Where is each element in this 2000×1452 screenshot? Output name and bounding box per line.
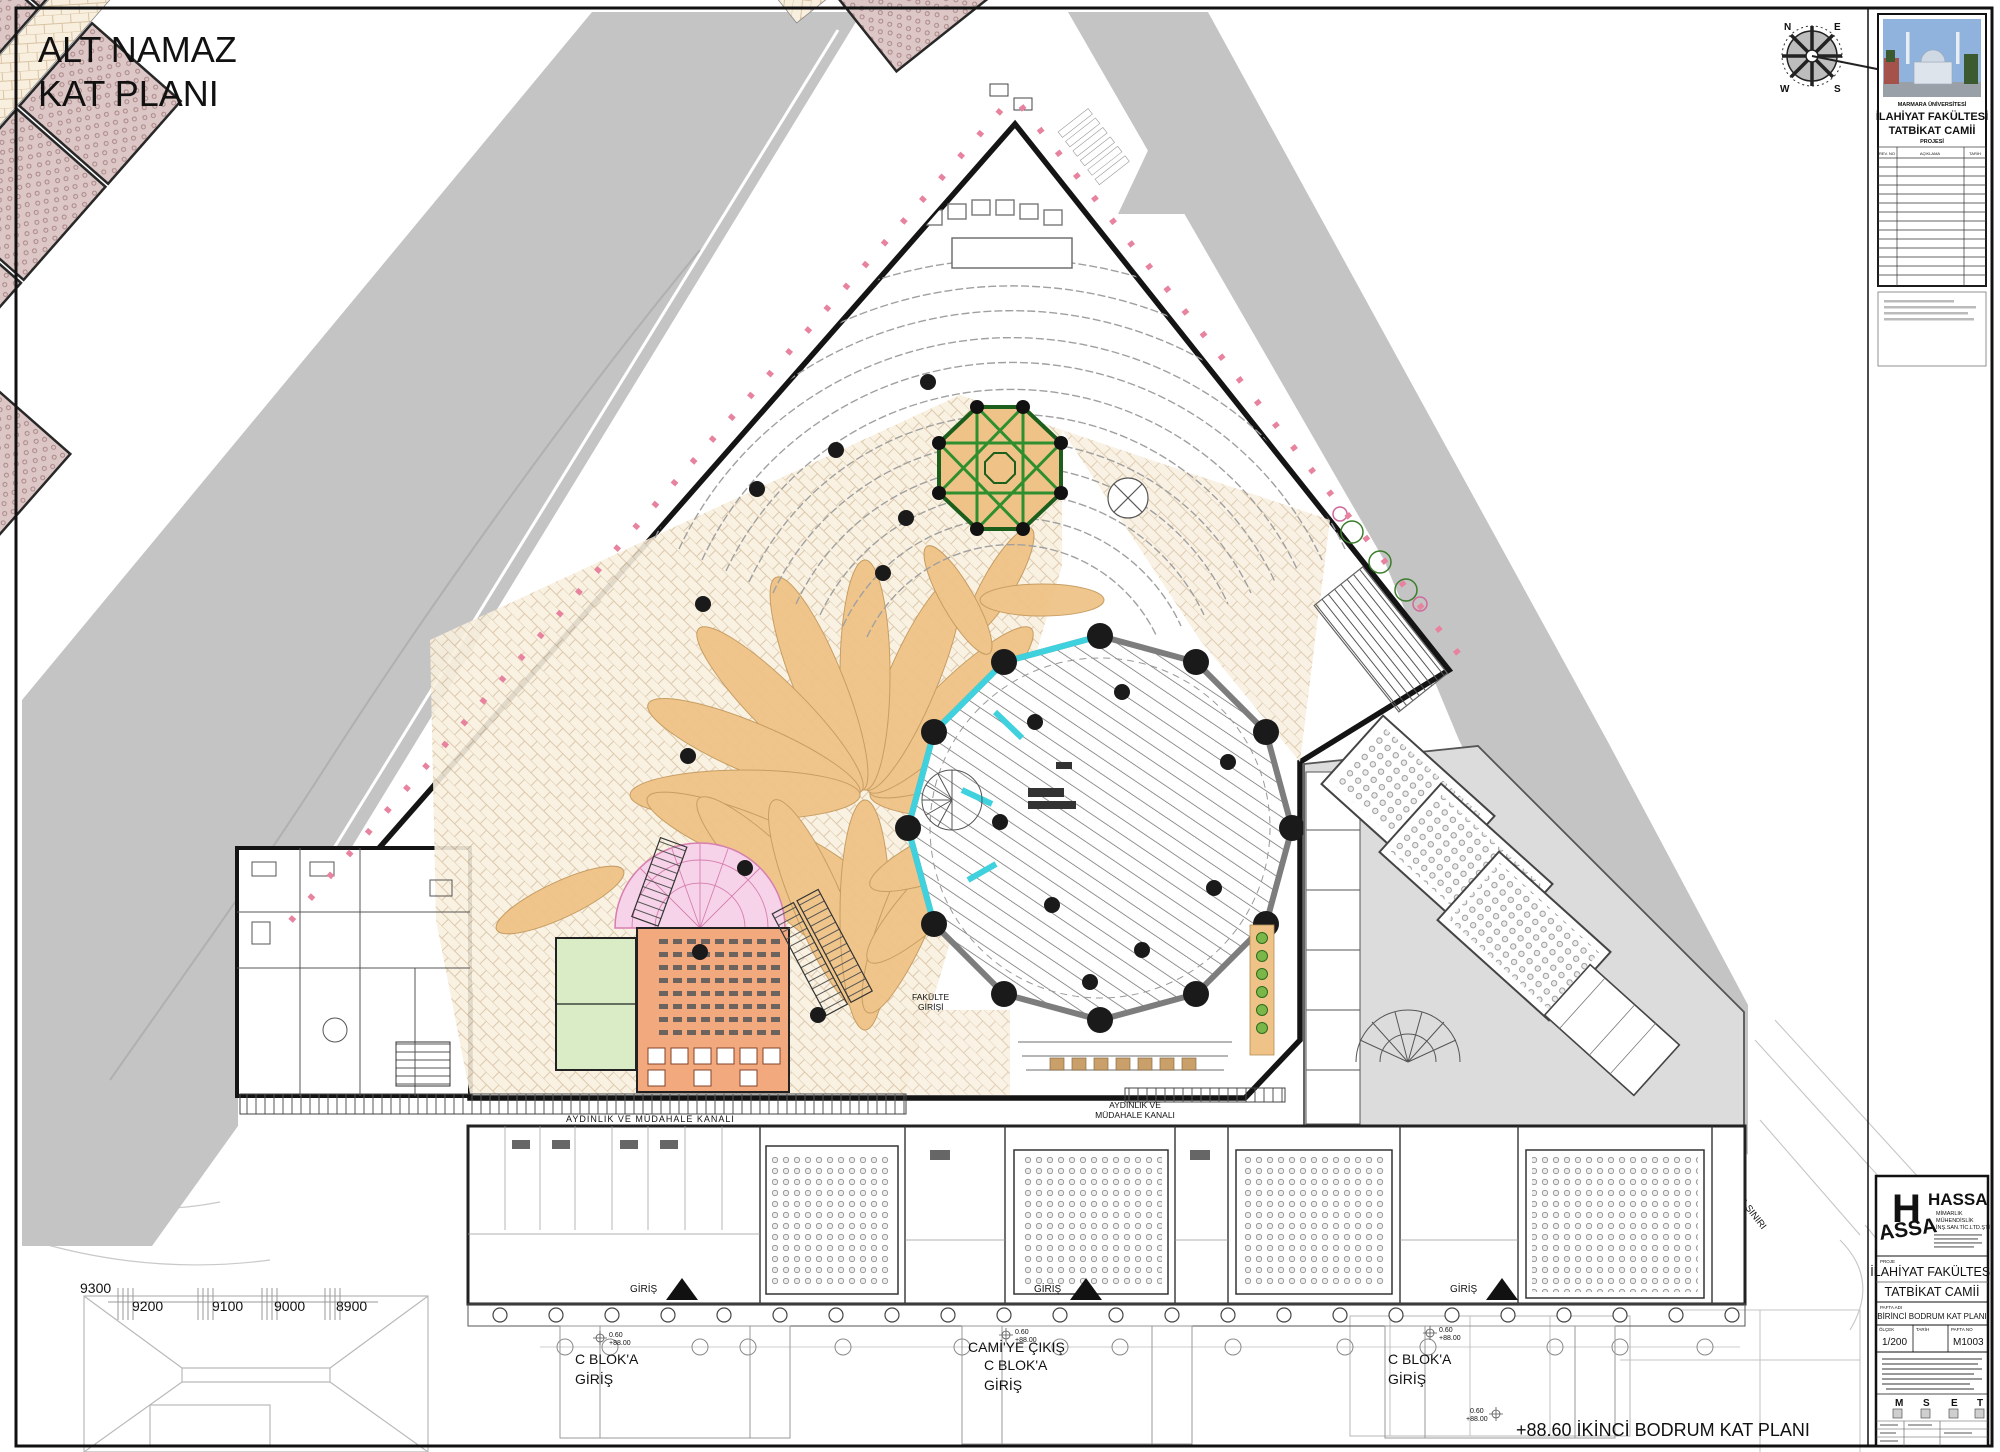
- station-9300: 9300: [80, 1280, 111, 1296]
- svg-text:M: M: [1895, 1398, 1903, 1409]
- station-9100: 9100: [212, 1298, 243, 1314]
- compass-n: N: [1784, 22, 1791, 33]
- svg-text:0.60: 0.60: [609, 1332, 623, 1339]
- hassa-sub1: MİMARLIK: [1936, 1210, 1963, 1217]
- station-9200: 9200: [132, 1298, 163, 1314]
- mosque-photo: [1883, 19, 1981, 97]
- tb2-proje-1: İLAHİYAT FAKÜLTESİ: [1870, 1265, 1993, 1279]
- rev-header-date: TARİH: [1969, 151, 1981, 156]
- skylight-circle: [1108, 478, 1148, 518]
- compass-w: W: [1780, 84, 1790, 95]
- floor-plan-svg: 9300 9200 9100 9000 8900 YAPI YAKLAŞMA S…: [0, 0, 2000, 1452]
- entry-center-label-2: C BLOK'A: [984, 1357, 1048, 1373]
- tb2-date-label: TARİH: [1916, 1326, 1929, 1332]
- drawing-sheet: 9300 9200 9100 9000 8900 YAPI YAKLAŞMA S…: [0, 0, 2000, 1452]
- rev-header-no: REV. NO: [1879, 151, 1895, 156]
- channel-label-2a: AYDINLIK VE: [1109, 1100, 1161, 1110]
- svg-text:0.60: 0.60: [1470, 1408, 1484, 1415]
- entry-left-label-1: C BLOK'A: [575, 1351, 639, 1367]
- site-survey-line: 9300 9200 9100 9000 8900: [80, 1280, 378, 1320]
- tb2-pafta-name: BİRİNCİ BODRUM KAT PLANI: [1877, 1312, 1987, 1321]
- bottom-band: [468, 1126, 1745, 1444]
- sheet-title-line2: KAT PLANI: [38, 73, 219, 114]
- svg-text:+88.00: +88.00: [1439, 1335, 1461, 1342]
- tb2-no-value: M1003: [1953, 1337, 1984, 1348]
- sheet-title-line1: ALT NAMAZ: [38, 29, 237, 70]
- svg-text:S: S: [1923, 1398, 1930, 1409]
- tb2-no-label: PAFTA NO: [1951, 1327, 1973, 1332]
- svg-text:+88.00: +88.00: [1466, 1416, 1488, 1423]
- tb2-proje-label: PROJE: [1880, 1259, 1895, 1264]
- tb2-pafta-label: PAFTA ADI: [1880, 1305, 1902, 1310]
- svg-text:+88.00: +88.00: [1015, 1337, 1037, 1344]
- fakulte-label-1: FAKÜLTE: [912, 992, 949, 1002]
- channel-label-2b: MÜDAHALE KANALI: [1095, 1110, 1175, 1120]
- tb2-scale-label: ÖLÇEK: [1879, 1326, 1894, 1332]
- hassa-sub3: İNŞ.SAN.TİC.LTD.ŞTİ.: [1936, 1224, 1992, 1231]
- facade-columns: [493, 1308, 1739, 1322]
- svg-text:E: E: [1951, 1398, 1958, 1409]
- giris-label-1: GİRİŞ: [630, 1282, 658, 1295]
- colonnade-strip: [468, 1304, 1745, 1326]
- entry-porches: [560, 1326, 1615, 1444]
- svg-text:+88.00: +88.00: [609, 1340, 631, 1347]
- entry-right-label-2: GİRİŞ: [1388, 1370, 1426, 1387]
- titleblock-bottom: H ASSA HASSA MİMARLIK MÜHENDİSLİK İNŞ.SA…: [1870, 1176, 1993, 1446]
- crosswalk: [1058, 109, 1129, 185]
- entry-left-label-2: GİRİŞ: [575, 1370, 613, 1387]
- giris-label-2: GİRİŞ: [1034, 1282, 1062, 1295]
- station-8900: 8900: [336, 1298, 367, 1314]
- station-9000: 9000: [274, 1298, 305, 1314]
- titleblock-top: MARMARA ÜNİVERSİTESİ İLAHİYAT FAKÜLTESİ …: [1876, 14, 1988, 366]
- tb2-scale-value: 1/200: [1882, 1337, 1907, 1348]
- svg-text:0.60: 0.60: [1439, 1327, 1453, 1334]
- fakulte-label-2: GİRİŞİ: [918, 1002, 944, 1012]
- hassa-name: HASSA: [1928, 1190, 1988, 1209]
- giris-label-3: GİRİŞ: [1450, 1282, 1478, 1295]
- compass-e: E: [1834, 22, 1841, 33]
- entry-right-label-1: C BLOK'A: [1388, 1351, 1452, 1367]
- tb-university: MARMARA ÜNİVERSİTESİ: [1898, 101, 1967, 108]
- compass-s: S: [1834, 84, 1841, 95]
- tb-project-3: PROJESİ: [1920, 138, 1944, 145]
- entry-center-label-3: GİRİŞ: [984, 1376, 1022, 1393]
- rev-header-desc: AÇIKLAMA: [1920, 151, 1941, 156]
- svg-text:T: T: [1977, 1398, 1983, 1409]
- channel-label-1: AYDINLIK VE MÜDAHALE KANALI: [566, 1114, 735, 1124]
- hassa-sub2: MÜHENDİSLİK: [1936, 1217, 1974, 1224]
- tb2-proje-2: TATBİKAT CAMİİ: [1885, 1285, 1980, 1299]
- svg-text:0.60: 0.60: [1015, 1329, 1029, 1336]
- channel-strip-left: [240, 1094, 906, 1114]
- tb-project-1: İLAHİYAT FAKÜLTESİ: [1876, 110, 1988, 123]
- apex-vents: [990, 84, 1032, 110]
- tb-project-2: TATBİKAT CAMİİ: [1889, 124, 1976, 137]
- plan-caption: +88.60 İKİNCİ BODRUM KAT PLANI: [1516, 1420, 1810, 1440]
